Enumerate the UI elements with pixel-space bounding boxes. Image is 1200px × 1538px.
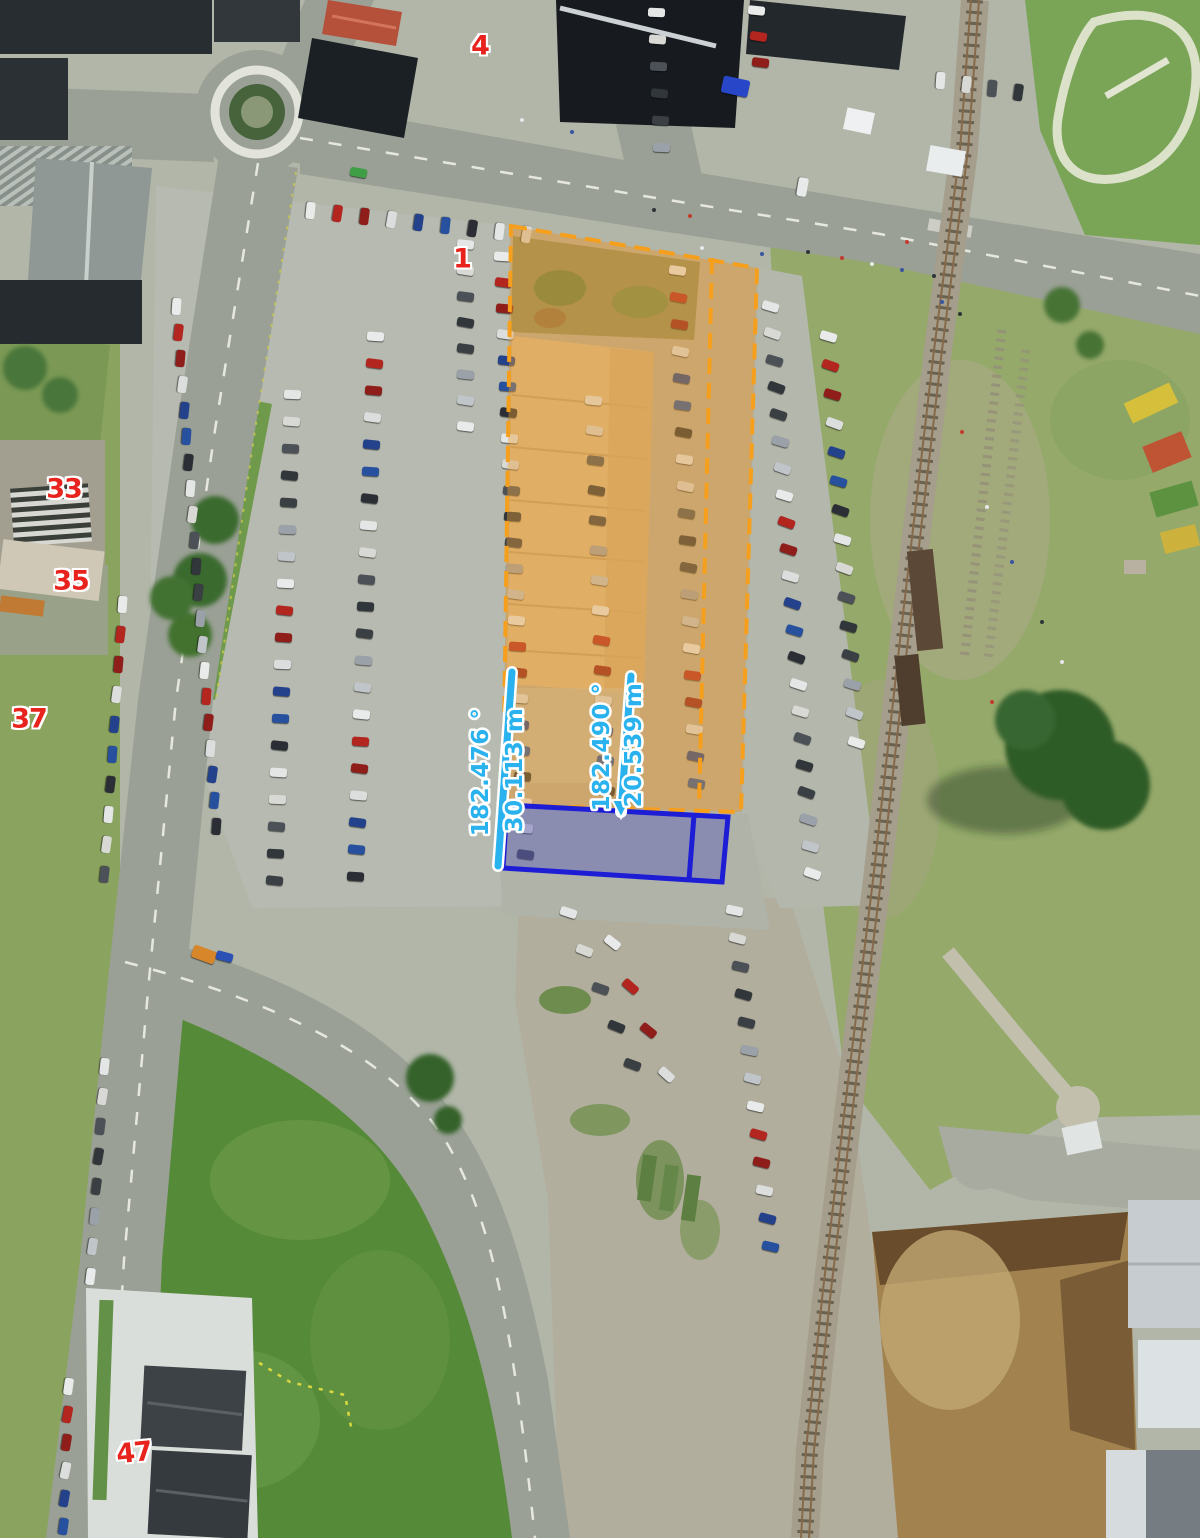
length-label-1: 30.113 m (502, 708, 528, 833)
aerial-map-canvas[interactable]: 182.476 ° 30.113 m 182.490 ° 20.539 m 41… (0, 0, 1200, 1538)
gis-annotation-overlay: 182.476 ° 30.113 m 182.490 ° 20.539 m (0, 0, 1200, 1538)
length-label-2: 20.539 m (621, 683, 647, 808)
bearing-label-1: 182.476 ° (468, 708, 494, 837)
bearing-label-2: 182.490 ° (589, 683, 615, 812)
